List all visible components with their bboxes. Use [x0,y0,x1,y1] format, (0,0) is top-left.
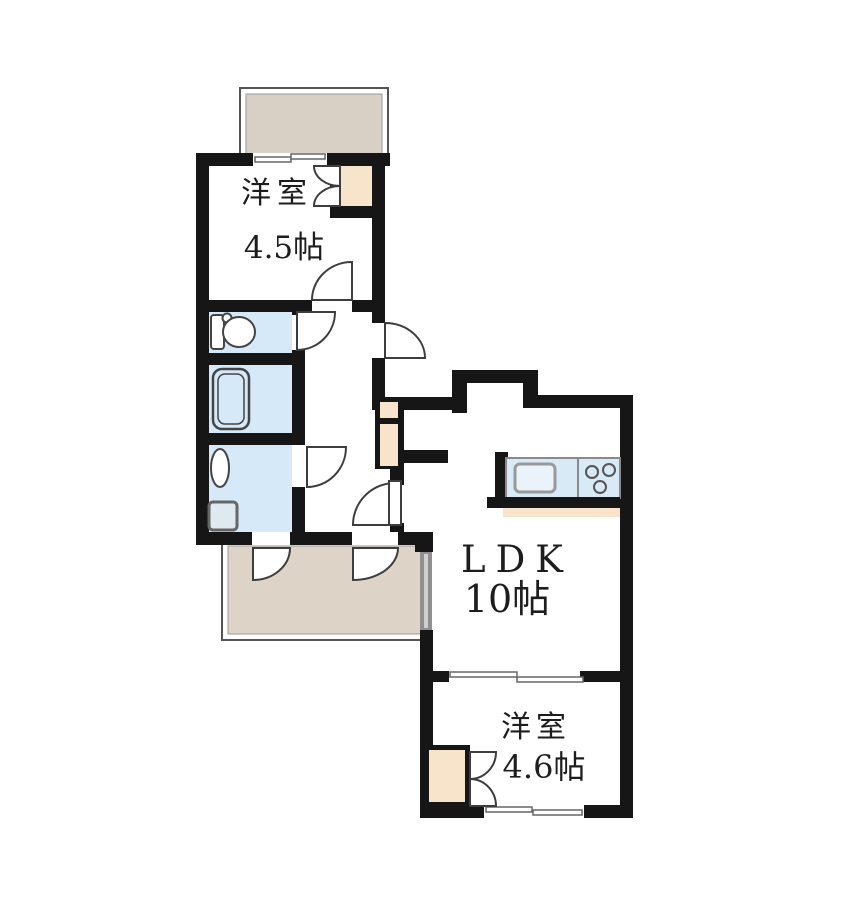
toilet-icon [211,314,255,350]
door-washroom [307,447,346,487]
closet-46-door-lower [470,779,496,806]
closet-room-46 [424,745,470,807]
door-toilet [297,312,335,350]
ldk-size: 10帖 [464,577,550,621]
room-46-size: 4.6帖 [503,748,586,786]
closet-46-door-upper [470,752,496,779]
door-room-45 [312,262,352,300]
room-46-name: 洋室 [501,710,571,745]
shoe-storage [380,402,398,466]
floor-plan: 洋室 4.5帖 LDK 10帖 洋室 4.6帖 [0,0,846,920]
washing-machine-pan-icon [209,502,237,530]
kitchen-counter [487,458,620,517]
ldk-name: LDK [461,538,573,581]
kitchen-sink [515,464,555,492]
room-45-size: 4.5帖 [244,230,324,266]
floor-plan-drawing: 洋室 4.5帖 LDK 10帖 洋室 4.6帖 [0,0,846,920]
room-45-name: 洋室 [241,176,313,211]
closet-45-door-lower [314,186,340,206]
window-panel-west [420,552,432,630]
balcony [240,88,388,155]
door-hall-ldk-panel [389,481,401,525]
door-porch [385,323,425,358]
closet-45-door-upper [314,166,340,186]
washbasin-icon [211,449,229,487]
